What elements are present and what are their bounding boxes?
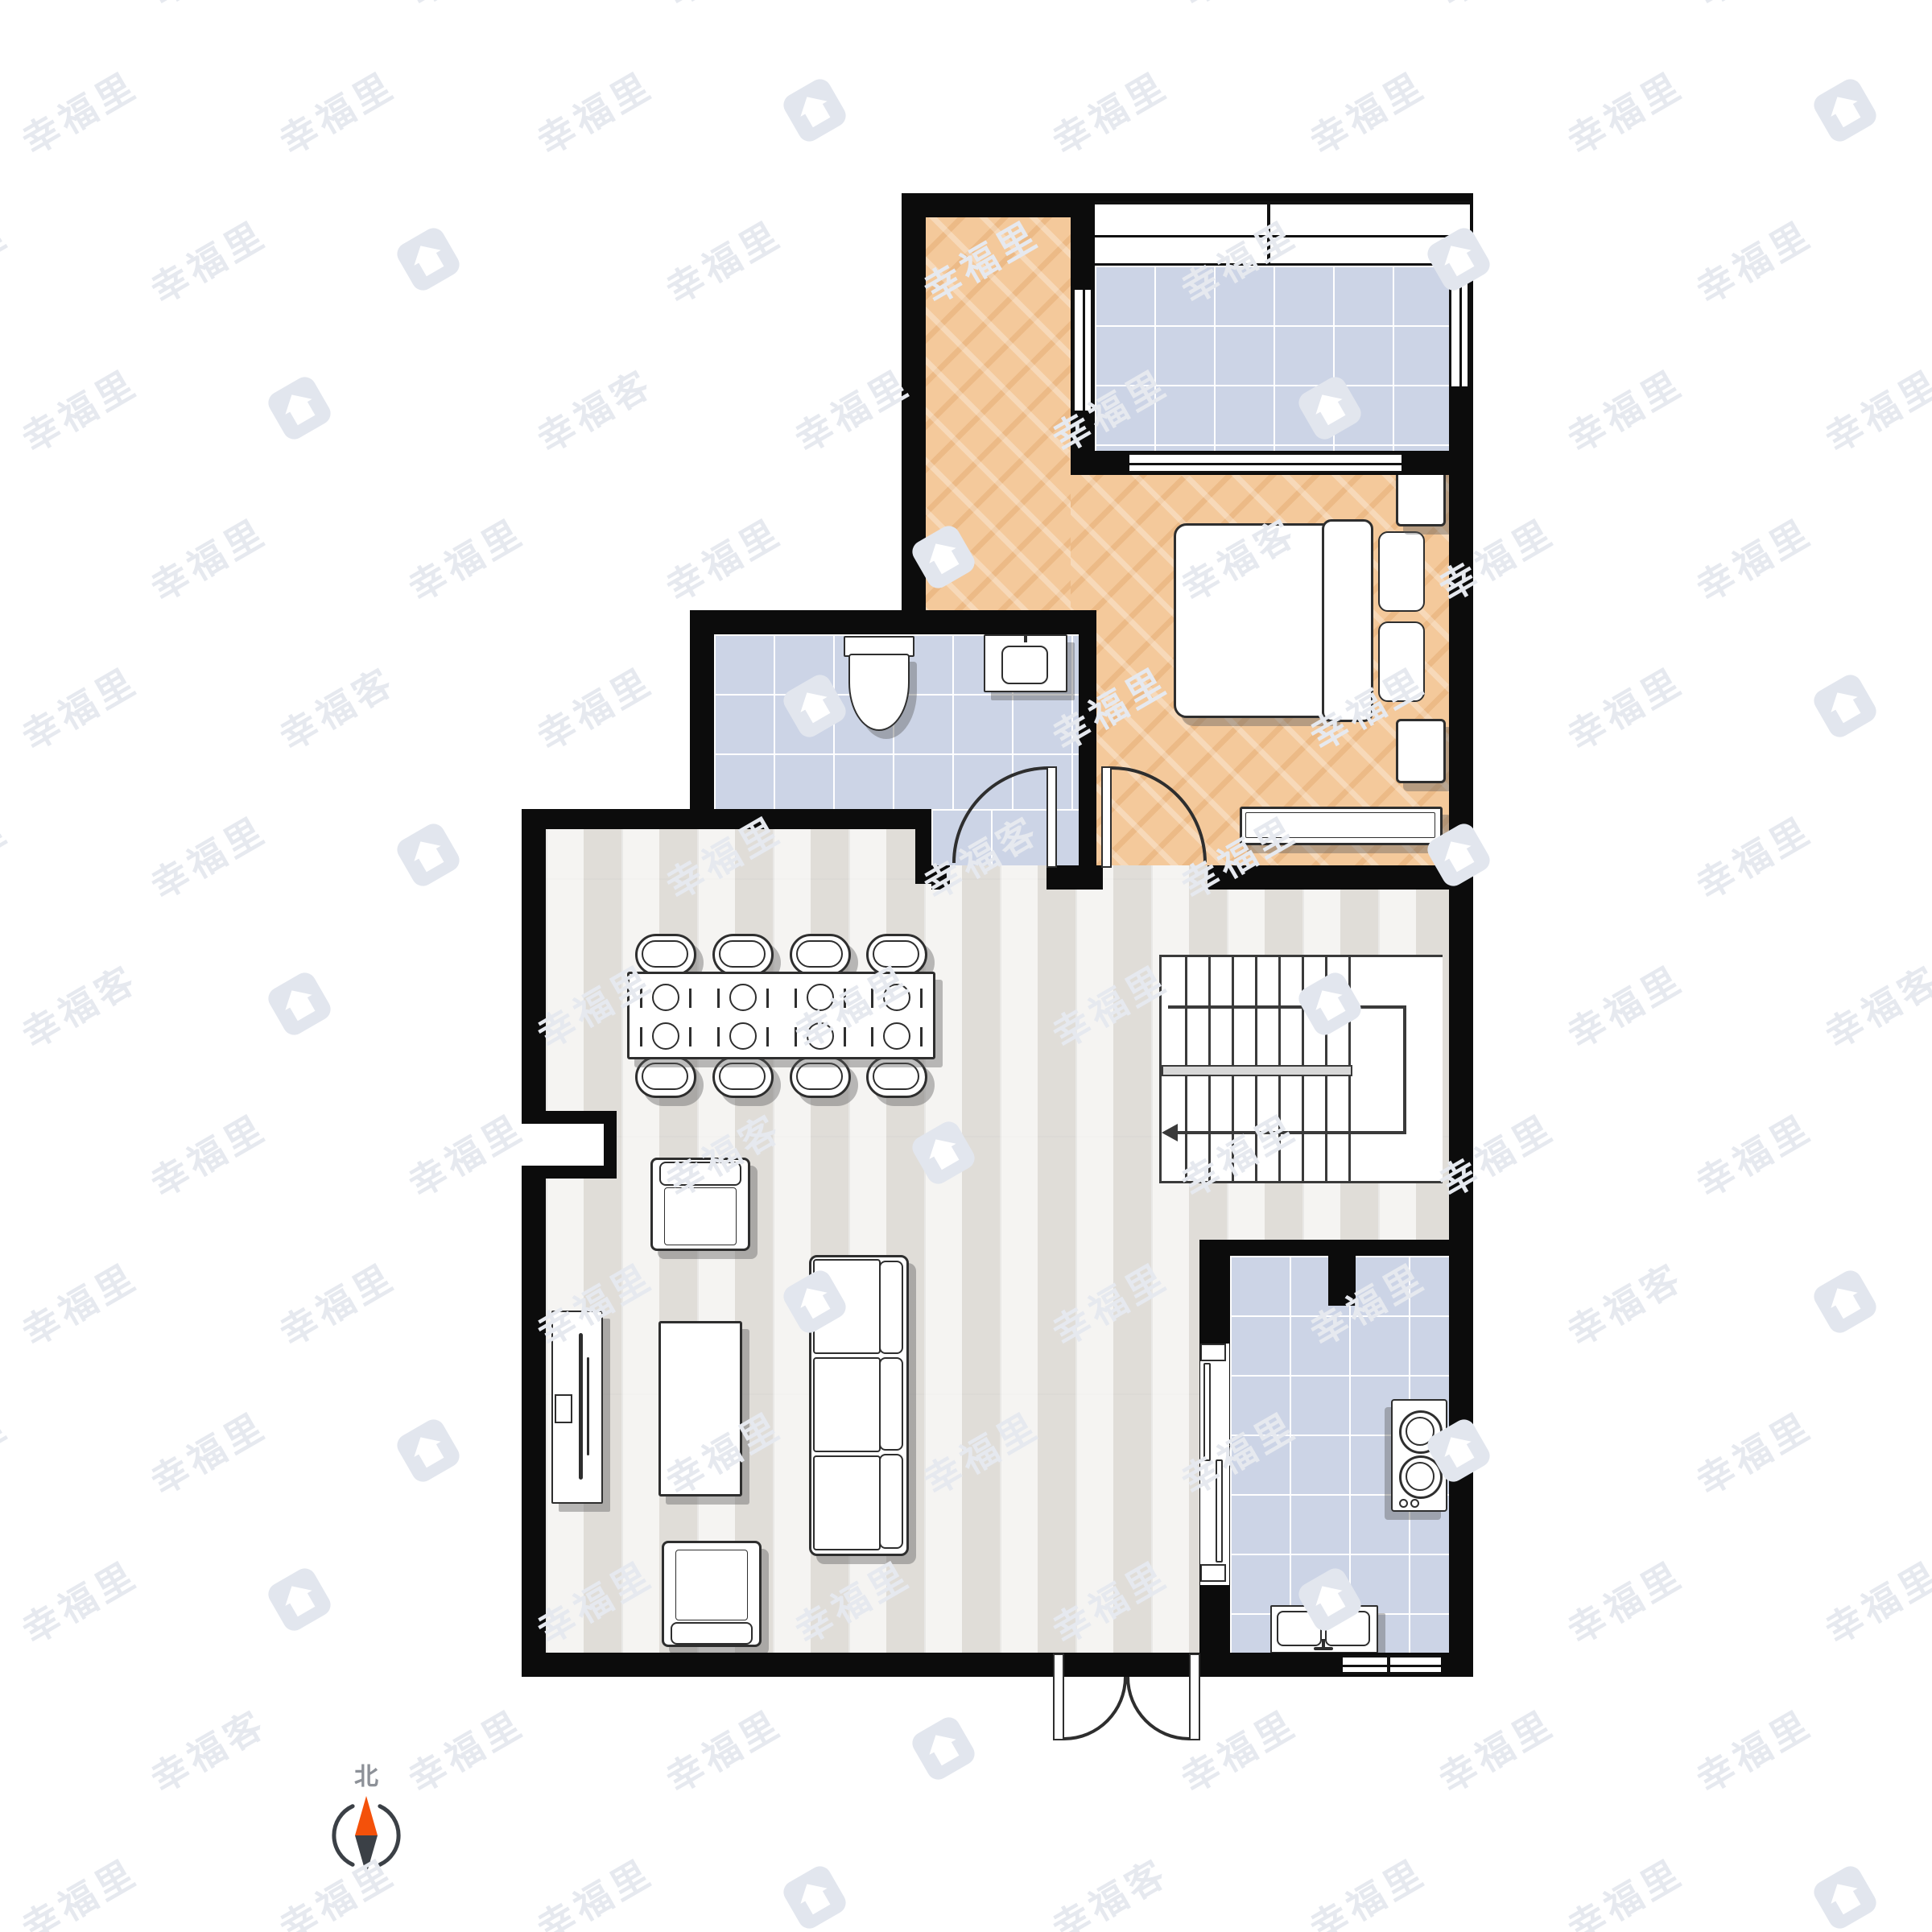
compass: 北 [322, 1759, 411, 1880]
compass-needle-north [355, 1796, 378, 1835]
dining-chair [635, 934, 696, 976]
watermark-house-icon [264, 373, 334, 443]
watermark-text: 幸福里 [1686, 1695, 1821, 1803]
stair-tread [1325, 957, 1327, 1065]
dining-chair [635, 1056, 696, 1098]
wall-bathroom-north [690, 610, 1096, 634]
floor-plan: 北 幸福里幸福里幸福里幸福里幸福里幸福客幸福里幸福里幸福里幸福里幸福里幸福里幸福… [0, 0, 1932, 1932]
dining-chair [790, 934, 851, 976]
armchair-bottom [662, 1541, 762, 1647]
watermark-text: 幸福里 [398, 1695, 533, 1803]
watermark-text: 幸福里 [1557, 56, 1692, 165]
wall-bathroom-east [1079, 610, 1096, 865]
watermark-text: 幸福里 [1428, 0, 1563, 17]
balcony-window-north [1095, 201, 1470, 266]
stair-tread [1208, 1076, 1211, 1183]
stove-burner-2-inner [1406, 1462, 1435, 1491]
stove-knob-2 [1410, 1499, 1419, 1508]
wall-kitchen-north [1199, 1240, 1449, 1256]
entry-door-leaf-right [1189, 1653, 1200, 1740]
stair-landing-bar [1162, 1065, 1352, 1076]
watermark-text: 幸福里 [269, 56, 404, 165]
dining-chair [866, 934, 927, 976]
watermark-text: 幸福里 [526, 56, 662, 165]
stair-tread [1232, 957, 1234, 1065]
place-setting [871, 984, 923, 1013]
wall-bottom-exterior [522, 1653, 1473, 1677]
bed-pillow-bottom [1378, 621, 1425, 702]
dining-chair [712, 934, 774, 976]
bed [1174, 523, 1333, 718]
watermark-house-icon [264, 968, 334, 1038]
watermark-text: 幸福里 [1557, 354, 1692, 463]
entry-door-arc-right [1126, 1677, 1189, 1740]
watermark-text: 幸福里 [140, 1099, 275, 1207]
watermark-text: 幸福里 [1686, 205, 1821, 314]
balcony-window-west [1072, 290, 1093, 411]
watermark-text: 幸福里 [140, 503, 275, 612]
watermark-house-icon [908, 1713, 978, 1783]
nightstand-bottom [1396, 719, 1446, 783]
watermark-house-icon [393, 819, 463, 890]
watermark-text: 幸福里 [655, 503, 791, 612]
stair-tread [1348, 1076, 1351, 1183]
wall-niche [522, 1111, 617, 1179]
watermark-text: 幸福客 [1557, 1248, 1692, 1356]
coffee-table [658, 1321, 742, 1496]
watermark-text: 幸福里 [11, 1843, 147, 1932]
wall-hall-south-c [1207, 865, 1449, 890]
wall-kitchen-stub [1328, 1256, 1356, 1306]
place-setting [717, 984, 769, 1013]
watermark-text: 幸福里 [1557, 950, 1692, 1059]
washbasin [984, 634, 1067, 692]
watermark-text: 幸福里 [1299, 1843, 1435, 1932]
staircase [1159, 955, 1443, 1183]
stair-tread [1185, 957, 1187, 1065]
washbasin-bowl [1001, 646, 1048, 684]
kitchen-window-south [1343, 1655, 1441, 1674]
dining-chair [866, 1056, 927, 1098]
wall-bedroom-west [902, 217, 926, 610]
entry-door-leaf-left [1053, 1653, 1064, 1740]
stair-arrow [1162, 1124, 1178, 1141]
stair-tread [1348, 957, 1351, 1065]
compass-ring-left [334, 1806, 353, 1865]
watermark-text: 幸福里 [1042, 56, 1177, 165]
stair-guide-right [1403, 1005, 1406, 1134]
place-setting [795, 984, 846, 1013]
watermark-house-icon [1810, 75, 1880, 145]
place-setting [795, 1022, 846, 1051]
watermark-house-icon [1810, 1266, 1880, 1336]
wall-bathroom-step [915, 809, 931, 884]
watermark-text: 幸福里 [11, 652, 147, 761]
watermark-text: 幸福客 [269, 652, 404, 761]
watermark-text: 幸福里 [655, 205, 791, 314]
watermark-text: 幸福里 [1814, 354, 1932, 463]
tv-unit [551, 1311, 603, 1504]
stair-guide-top [1168, 1005, 1406, 1009]
watermark-text: 幸福里 [1686, 1397, 1821, 1505]
wall-left-exterior [522, 809, 546, 1677]
stair-tread [1255, 957, 1257, 1065]
watermark-house-icon [779, 75, 849, 145]
watermark-text: 幸福里 [1428, 1695, 1563, 1803]
balcony-window-east [1449, 266, 1470, 386]
balcony-floor [1095, 266, 1449, 451]
watermark-text: 幸福里 [11, 56, 147, 165]
watermark-text: 幸福里 [140, 801, 275, 910]
wall-hall-south-a [931, 865, 950, 890]
watermark-text: 幸福里 [140, 205, 275, 314]
dining-chair [790, 1056, 851, 1098]
wall-living-north [522, 809, 915, 829]
watermark-text: 幸福里 [0, 801, 18, 910]
watermark-house-icon [393, 224, 463, 294]
watermark-text: 幸福里 [1686, 503, 1821, 612]
tv-screen [579, 1333, 583, 1480]
stair-tread [1208, 957, 1211, 1065]
wall-hall-south-b [1046, 865, 1103, 890]
watermark-text: 幸福里 [398, 503, 533, 612]
watermark-house-icon [264, 1564, 334, 1634]
watermark-text: 幸福里 [526, 1843, 662, 1932]
watermark-text: 幸福里 [398, 1099, 533, 1207]
stair-tread [1255, 1076, 1257, 1183]
watermark-text: 幸福里 [11, 354, 147, 463]
watermark-text: 幸福里 [1686, 1099, 1821, 1207]
stair-tread [1278, 957, 1281, 1065]
watermark-text: 幸福里 [1686, 801, 1821, 910]
place-setting [640, 984, 691, 1013]
entry-door-arc-left [1064, 1677, 1127, 1740]
bed-fold [1322, 519, 1373, 722]
compass-ring-right [380, 1806, 398, 1865]
watermark-text: 幸福里 [140, 1397, 275, 1505]
watermark-text: 幸福客 [526, 354, 662, 463]
tv-bracket [555, 1394, 572, 1423]
watermark-text: 幸福里 [0, 205, 18, 314]
compass-needle-south [355, 1835, 378, 1875]
watermark-text: 幸福里 [1170, 0, 1306, 17]
stair-tread [1302, 1076, 1304, 1183]
watermark-text: 幸福里 [1814, 1546, 1932, 1654]
place-setting [640, 1022, 691, 1051]
wall-bathroom-west [690, 634, 714, 825]
bathroom-door-leaf [1046, 766, 1057, 868]
watermark-text: 幸福里 [11, 1546, 147, 1654]
stair-tread [1278, 1076, 1281, 1183]
watermark-text: 幸福客 [1042, 1843, 1177, 1932]
stove-knob-1 [1399, 1499, 1408, 1508]
watermark-house-icon [1810, 671, 1880, 741]
stove-burner-1-inner [1406, 1417, 1435, 1446]
watermark-house-icon [1810, 1862, 1880, 1932]
stair-tread [1232, 1076, 1234, 1183]
watermark-text: 幸福里 [140, 0, 275, 17]
dresser [1240, 807, 1443, 845]
watermark-text: 幸福里 [655, 1695, 791, 1803]
kitchen-sink [1270, 1605, 1378, 1653]
bedroom-door-leaf [1101, 766, 1112, 868]
balcony-window-south [1129, 452, 1402, 473]
watermark-house-icon [779, 1862, 849, 1932]
watermark-text: 幸福里 [1557, 652, 1692, 761]
watermark-house-icon [393, 1415, 463, 1485]
watermark-text: 幸福客 [11, 950, 147, 1059]
watermark-text: 幸福里 [269, 1248, 404, 1356]
tv-screen-line [587, 1357, 589, 1455]
watermark-text: 幸福里 [0, 1397, 18, 1505]
watermark-text: 幸福里 [11, 1248, 147, 1356]
watermark-text: 幸福里 [655, 0, 791, 17]
dining-chair [712, 1056, 774, 1098]
stair-tread [1185, 1076, 1187, 1183]
watermark-text: 幸福客 [140, 1695, 275, 1803]
sink-basin-left [1277, 1611, 1322, 1646]
sofa [809, 1255, 909, 1556]
sink-faucet-bar [1314, 1647, 1333, 1650]
watermark-text: 幸福客 [1686, 0, 1821, 17]
compass-north-label: 北 [354, 1764, 378, 1790]
armchair-top [650, 1158, 750, 1251]
stove [1391, 1399, 1447, 1512]
stair-tread [1302, 957, 1304, 1065]
place-setting [717, 1022, 769, 1051]
watermark-text: 幸福里 [1557, 1843, 1692, 1932]
stair-tread [1325, 1076, 1327, 1183]
watermark-text: 幸福里 [784, 354, 919, 463]
bed-pillow-top [1378, 531, 1425, 612]
sink-basin-right [1325, 1611, 1370, 1646]
place-setting [871, 1022, 923, 1051]
watermark-text: 幸福里 [526, 652, 662, 761]
watermark-text: 幸福里 [1299, 56, 1435, 165]
kitchen-sliding-door [1200, 1344, 1229, 1585]
watermark-text: 幸福客 [1814, 950, 1932, 1059]
watermark-text: 幸福里 [1557, 1546, 1692, 1654]
wall-right-exterior [1449, 193, 1473, 1677]
watermark-text: 幸福里 [398, 0, 533, 17]
